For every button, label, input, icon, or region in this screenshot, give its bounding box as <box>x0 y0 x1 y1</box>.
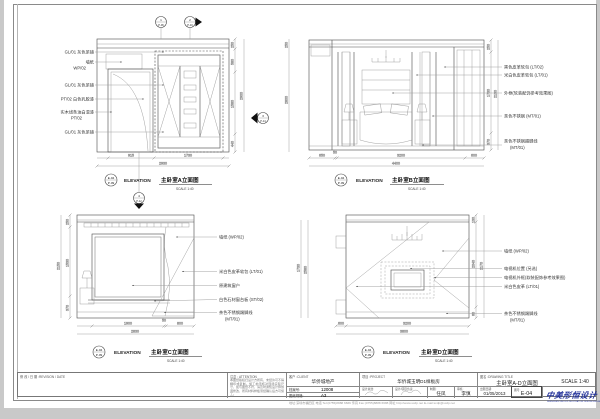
elevation-a-callouts: 1 P-06 2 P-10 3 P-14 4 P-12 <box>134 17 269 210</box>
material-label: (MT/01) <box>225 316 240 321</box>
drawing-title: 主卧室B立面图 <box>392 176 430 184</box>
elevation-a-leaders <box>95 52 164 132</box>
drawing-scale: SCALE 1:40 <box>176 187 194 191</box>
drawing-scale: SCALE 1:40 <box>167 359 185 363</box>
dim-text: 1580 <box>231 100 235 108</box>
revision-label: 修 改 / 日 期 :REVISION / DATE <box>20 374 65 379</box>
elevation-label: ELEVATION <box>124 178 151 184</box>
elevation-label: ELEVATION <box>383 350 410 356</box>
material-label: 电视机外框(软装配饰参考效果图) <box>504 274 566 281</box>
dim-text: 3200 <box>403 322 411 326</box>
title-tag: P-09 <box>96 353 103 357</box>
dim-text: 650 <box>319 154 325 158</box>
dim-text: 250 <box>487 44 491 50</box>
file-value: 12008 <box>321 387 333 392</box>
material-label: WP/02 <box>73 66 86 71</box>
dim-text: 250 <box>231 42 235 48</box>
drawing-title-box: 图名 :DRAWING TITLE 主卧室A-D立面图 SCALE 1:40 <box>477 373 596 386</box>
elevation-d-title: E-04 P-09 ELEVATION 主卧室D立面图 SCALE 1:40 <box>362 346 472 363</box>
dim-text: 580 <box>231 59 235 65</box>
design-director-signature <box>360 386 393 398</box>
dim-text: 2130 <box>494 90 498 98</box>
title-tag: P-09 <box>108 181 115 185</box>
material-label: 实木线条油白混漆 <box>60 108 94 115</box>
elevation-b-leaders <box>392 67 502 145</box>
dim-text: 3200 <box>397 154 405 158</box>
elevation-b-linework <box>309 40 484 150</box>
dim-text: 2800 <box>285 96 289 104</box>
callout-arrow-icon <box>196 18 203 27</box>
callout-ref: P-12 <box>136 199 142 203</box>
dim-text: 800 <box>177 322 183 326</box>
dim-text: 600 <box>471 154 477 158</box>
material-label: GL/01 灰色茶镜 <box>65 48 95 55</box>
title-tag: E-04 <box>338 176 345 180</box>
elevation-c-title: E-04 P-09 ELEVATION 主卧室C立面图 SCALE 1:40 <box>93 346 202 363</box>
elevation-c-leaders <box>132 237 217 313</box>
material-label: 墙纸 (WP/02) <box>504 247 529 254</box>
elevation-d-drawing: 墙纸 (WP/02) 电视机位置 (另选) 电视机外框(软装配饰参考效果图) 米… <box>334 208 600 368</box>
material-label: PT/02 <box>71 116 83 121</box>
callout-number: 4 <box>138 194 140 198</box>
draft-value: 任凤 <box>428 391 454 397</box>
title-block: 修 改 / 日 期 :REVISION / DATE 注意 : ATTENTIO… <box>17 372 596 397</box>
dim-text: 2580 <box>304 266 308 274</box>
dim-text: 915 <box>128 154 134 158</box>
callout-number: 1 <box>160 18 162 22</box>
date-value: 01/05/2013 <box>478 391 511 396</box>
material-label: 茶色不锈钢踢脚线 <box>504 310 538 317</box>
material-label: 茶色不锈钢踢脚线 <box>504 137 538 144</box>
elevation-label: ELEVATION <box>356 178 383 184</box>
dim-text: 1730 <box>297 264 301 272</box>
material-label: PT/02 白色乳胶漆 <box>61 95 94 102</box>
callout-ref: P-06 <box>158 23 164 27</box>
elevation-b-material-labels: 黑色皮革软包 (LT/02) 米白色皮革软包 (LT/01) 外框(软装配饰参考… <box>504 63 553 149</box>
elevation-d-leaders <box>356 251 502 314</box>
material-label: 电视机位置 (另选) <box>504 265 538 272</box>
design-lead-signature <box>393 386 428 398</box>
design-lead-box: 设计/项目负责: <box>392 386 427 398</box>
elevation-a-linework <box>97 39 229 152</box>
attention-text: 本图纸版权归设计方所有，未经许可不得翻印或复制。施工前须核对现场实际尺寸，如与图… <box>230 379 284 397</box>
title-tag: E-04 <box>365 348 372 352</box>
project-value: 华侨城玉明D1样板房 <box>360 379 477 385</box>
elevation-b-dimensions: 650 50 3200 600 4400 250 1730 370 2130 <box>308 39 499 167</box>
sheet-number-value: E-04 <box>512 391 541 397</box>
paper-value: A3 <box>321 393 326 398</box>
dim-text: 3800 <box>400 330 408 334</box>
client-box: 客户 :CLIENT 华侨城地产 <box>286 373 359 386</box>
dim-text: 130 <box>472 217 476 223</box>
elevation-d-linework <box>336 215 469 318</box>
callout-number: 2 <box>189 18 191 22</box>
material-label: 墙纸 <box>86 58 95 65</box>
dim-text: 2900 <box>240 92 244 100</box>
material-label: 黑色皮革软包 (LT/02) <box>504 63 544 70</box>
material-label: 原建筑窗户 <box>219 282 240 289</box>
callout-ref: P-14 <box>260 119 266 123</box>
draft-box: 制图: 任凤 <box>427 386 454 398</box>
dim-text: 4400 <box>392 162 400 166</box>
material-label: GL/01 灰色茶镜 <box>65 81 95 88</box>
material-label: 茶色不锈钢 (MT/01) <box>504 112 541 119</box>
elevation-c-material-labels: 墙纸 (WP/02) 米白色皮革软包 (LT/01) 原建筑窗户 白色石材窗台板… <box>219 233 264 321</box>
elevation-b-title: E-04 P-09 ELEVATION 主卧室B立面图 SCALE 1:40 <box>335 174 444 191</box>
material-label: 米白色皮革软包 (LT/01) <box>504 71 548 78</box>
title-tag: P-09 <box>338 181 345 185</box>
file-box: 档案号: 12008 图纸规格: A3 <box>286 386 359 398</box>
material-label: 茶色不锈钢踢脚线 <box>219 309 253 316</box>
material-label: GL/01 灰色茶镜 <box>65 128 95 135</box>
attention-box: 注意 : ATTENTION 本图纸版权归设计方所有，未经许可不得翻印或复制。施… <box>227 373 286 398</box>
dim-text: 1900 <box>124 322 132 326</box>
dim-text: 2170 <box>480 262 484 270</box>
dim-text: 2150 <box>57 262 61 270</box>
material-label: 外框(软装配饰参考效果图) <box>504 89 553 96</box>
material-label: 米白色皮革软包 (LT/01) <box>219 268 263 275</box>
dim-text: 2040 <box>472 260 476 268</box>
dim-text: 2830 <box>131 330 139 334</box>
elevation-a-title: E-04 P-09 ELEVATION 主卧室A立面图 SCALE 1:40 <box>105 174 212 191</box>
dim-text: 50 <box>333 150 337 154</box>
check-box: 审核: 李慎 <box>454 386 477 398</box>
date-box: 出图日期: 01/05/2013 <box>477 386 511 398</box>
company-logo-subtitle: SHENZHEN SINO-US DECORATION DESIGN ENGIN… <box>547 400 600 403</box>
elevation-c-linework <box>77 215 194 318</box>
title-tag: E-04 <box>96 348 103 352</box>
material-label: (MT/01) <box>510 145 525 150</box>
title-tag: P-09 <box>365 353 372 357</box>
dim-text: 600 <box>338 322 344 326</box>
drawing-title: 主卧室A立面图 <box>161 176 199 184</box>
drawing-scale: SCALE 1:40 <box>408 187 426 191</box>
callout-number: 3 <box>262 114 264 118</box>
dim-text: 440 <box>231 141 235 147</box>
drawing-scale-value: SCALE 1:40 <box>556 379 594 385</box>
elevation-d-dimensions: 600 3200 3800 130 2040 60 2170 <box>335 214 485 335</box>
material-label: 米白色皮革 (LT/01) <box>504 283 540 290</box>
elevation-c-drawing: 墙纸 (WP/02) 米白色皮革软包 (LT/01) 原建筑窗户 白色石材窗台板… <box>4 208 334 368</box>
logo-box: 中美形恒设计 SHENZHEN SINO-US DECORATION DESIG… <box>542 386 596 398</box>
elevation-a-drawing: GL/01 灰色茶镜 墙纸 WP/02 GL/01 灰色茶镜 PT/02 白色乳… <box>4 8 304 208</box>
elevation-label: ELEVATION <box>114 350 141 356</box>
drawing-scale: SCALE 1:40 <box>435 359 453 363</box>
material-label: 墙纸 (WP/02) <box>219 233 244 240</box>
dim-text: 60 <box>472 312 476 316</box>
elevation-b-drawing: 黑色皮革软包 (LT/02) 米白色皮革软包 (LT/01) 外框(软装配饰参考… <box>304 8 600 208</box>
drawing-title: 主卧室C立面图 <box>151 348 189 356</box>
dim-text: 370 <box>66 305 70 311</box>
callout-ref: P-10 <box>187 23 193 27</box>
material-label: (MT/01) <box>510 317 525 322</box>
client-value: 华侨城地产 <box>287 379 359 385</box>
dim-text: 2930 <box>159 162 167 166</box>
drawing-sheet: GL/01 灰色茶镜 墙纸 WP/02 GL/01 灰色茶镜 PT/02 白色乳… <box>4 0 596 408</box>
sheet-number-box: 图号: E-04 <box>511 386 542 398</box>
check-value: 李慎 <box>455 391 477 397</box>
elevation-d-material-labels: 墙纸 (WP/02) 电视机位置 (另选) 电视机外框(软装配饰参考效果图) 米… <box>504 247 566 322</box>
dim-text: 1730 <box>184 154 192 158</box>
revision-box: 修 改 / 日 期 :REVISION / DATE <box>18 373 227 398</box>
material-label: 白色石材窗台板 (ST/02) <box>219 296 264 303</box>
dim-text: 250 <box>285 42 289 48</box>
project-box: 项目 :PROJECT 华侨城玉明D1样板房 <box>359 373 477 386</box>
title-tag: E-04 <box>108 176 115 180</box>
elevation-a-material-labels: GL/01 灰色茶镜 墙纸 WP/02 GL/01 灰色茶镜 PT/02 白色乳… <box>60 48 94 135</box>
dim-text: 50 <box>162 318 166 322</box>
dim-text: 250 <box>66 219 70 225</box>
design-director-box: 设计总监: <box>359 386 392 398</box>
dim-text: 1730 <box>487 89 491 97</box>
contact-footer: 地址:深圳市福田区 电话 Tel:(0755)8888 6666 传真 Fax:… <box>289 400 455 405</box>
callout-arrow-icon <box>251 113 258 124</box>
drawing-title: 主卧室D立面图 <box>421 348 459 356</box>
paper-label: 图纸规格: <box>289 393 304 398</box>
dim-text: 1530 <box>66 259 70 267</box>
dim-text: 370 <box>487 139 491 145</box>
